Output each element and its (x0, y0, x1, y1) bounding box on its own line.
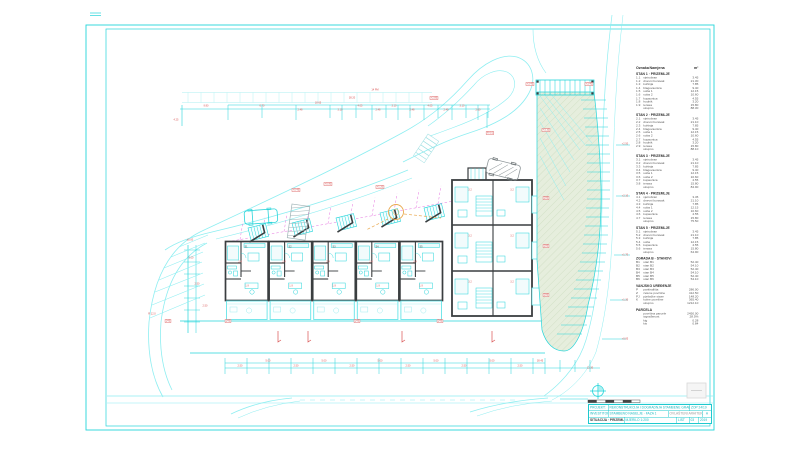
dim-label: ±0.00 (187, 239, 193, 242)
investor-label: INVESTITOR: (589, 411, 609, 417)
dim-label: +2.10 (622, 195, 628, 198)
dim-label: 3.2 (468, 281, 472, 284)
dim-label: +0.90 (324, 182, 332, 185)
dim-label: +0.45 (292, 188, 300, 191)
dim-label: 2.4 (238, 261, 242, 264)
dim-label: 245 (437, 319, 443, 322)
dim-label: 3.2 (510, 189, 514, 192)
legend-group: STAN 2 · PRIZEMLJE2.1vjetrobran3.452.2dn… (636, 113, 698, 151)
dim-label: S4 (375, 246, 378, 249)
dim-label: 245 (225, 319, 231, 322)
dim-label: 2.4 (282, 261, 286, 264)
legend-group: STAN 1 · PRIZEMLJE1.1vjetrobran3.451.2dn… (636, 72, 698, 110)
dim-label: 2.48 (298, 109, 303, 112)
stamp-cell: A (703, 411, 711, 417)
legend-group: STAN 5 · PRIZEMLJE5.1vjetrobran3.455.2dn… (636, 226, 698, 254)
dim-label: 295 (543, 293, 549, 296)
dim-label: 2.48 (410, 109, 415, 112)
dim-label: 3.10 (392, 105, 397, 108)
legend-row: ukupno88.10 (636, 148, 698, 151)
dim-label: 5.00 (434, 360, 439, 363)
dim-label: 2.50 (238, 365, 243, 368)
legend-group: STAN 4 · PRIZEMLJE4.1vjetrobran3.454.2dn… (636, 192, 698, 224)
dim-label: 245 (165, 319, 171, 322)
dim-label: 5.00 (490, 360, 495, 363)
title-block-row: SITUACIJA · PRIZEMLJE MJERILO 1:200 LIST… (589, 417, 711, 423)
dim-label: 2.50 (518, 365, 523, 368)
dim-label: 1.9 (332, 285, 336, 288)
dim-label: 2.50 (406, 365, 411, 368)
sheet-label: LIST (677, 417, 690, 423)
dim-label: 18.65 (315, 102, 321, 105)
legend-groups: STAN 1 · PRIZEMLJE1.1vjetrobran3.451.2dn… (636, 72, 698, 326)
dim-label: +2.85 (430, 96, 438, 99)
dim-label: 1.9 (289, 285, 293, 288)
legend-group: ZGRADA B · STANOVIB1stan B152.40B2stan B… (636, 257, 698, 282)
dim-label: 2.48 (376, 109, 381, 112)
dim-label: 295 (543, 196, 549, 199)
dim-label: 1.9 (419, 285, 423, 288)
dim-label: 9.80 (204, 105, 209, 108)
legend-row: kis0.84 (636, 323, 698, 326)
legend-group: STAN 3 · PRIZEMLJE3.1vjetrobran3.453.2dn… (636, 154, 698, 189)
dim-label: 5.00 (322, 360, 327, 363)
dim-label: 38.45 (537, 360, 543, 363)
dim-label: 295 (543, 244, 549, 247)
dim-label: 5.00 (378, 360, 383, 363)
dim-label: +1.70 (622, 254, 628, 257)
dim-label: +1.30 (622, 299, 628, 302)
dim-label: S3 (332, 246, 335, 249)
dim-label: 3.10 (338, 109, 343, 112)
zop-number: ZOP 24/19 (690, 405, 711, 411)
dim-label: 12.30 (587, 367, 593, 370)
legend-group: PARCELApovršina parcele2450.00izgrađenos… (636, 308, 698, 326)
dim-label: 6.70 (260, 105, 265, 108)
legend-row: ukupno84.90 (636, 186, 698, 189)
dim-label: 1.9 (376, 285, 380, 288)
dim-label: R 12.0 (148, 313, 155, 316)
dim-label: 3.2 (468, 189, 472, 192)
legend-group: VANJSKO UREĐENJEPparkirališta286.00Zzele… (636, 284, 698, 305)
dim-label: 2.4 (326, 261, 330, 264)
dim-label: 1.9 (245, 285, 249, 288)
dim-label: 3.2 (510, 281, 514, 284)
drawing-title: SITUACIJA · PRIZEMLJE (589, 417, 625, 423)
dim-label: 2.50 (294, 365, 299, 368)
project-label: PROJEKT: (589, 405, 609, 411)
dim-label: 14 PM (371, 89, 378, 92)
dim-label: R 6.0 (486, 131, 494, 134)
sheet-date: 2019 (699, 417, 711, 423)
dim-label: 2.4 (369, 261, 373, 264)
dim-label: 2.50 (195, 283, 200, 286)
investor-value: STAMBENO NASELJE · FAZA 1 (609, 411, 669, 417)
dim-label: +3.10 (542, 128, 550, 131)
drawing-scale: MJERILO 1:200 (625, 417, 678, 423)
title-block: PROJEKT: REKONSTRUKCIJA I DOGRADNJA STAM… (588, 404, 712, 424)
dim-label: 38.20 (349, 97, 355, 100)
project-title: REKONSTRUKCIJA I DOGRADNJA STAMBENE GRAĐ… (609, 405, 691, 411)
area-schedule: Oznaka Namjena m² STAN 1 · PRIZEMLJE1.1v… (636, 66, 698, 450)
dim-label: +2.50 (622, 143, 628, 146)
dim-label: +1.20 (376, 185, 384, 188)
dim-label: 245 (354, 319, 360, 322)
legend-row: ukupno1212.10 (636, 302, 698, 305)
sheet-number: 03 (690, 417, 700, 423)
dim-label: S2 (288, 246, 291, 249)
dim-label: S5 (419, 246, 422, 249)
legend-row: ukupno75.50 (636, 220, 698, 223)
dim-label: 2.48 (444, 109, 449, 112)
dim-label: 2.50 (462, 365, 467, 368)
dim-label: 4.05 (358, 105, 363, 108)
dim-label: +3.40 (585, 82, 593, 85)
dim-label: 2.50 (203, 305, 208, 308)
legend-row: ukupno88.30 (636, 107, 698, 110)
dim-label: 3.2 (510, 235, 514, 238)
dim-label: +3.45 (526, 82, 534, 85)
dim-label: 2.4 (413, 261, 417, 264)
dim-label: 2.50 (350, 365, 355, 368)
dim-label: 5.00 (266, 360, 271, 363)
architect-note: OVLAŠTENI ARHITEKT (669, 411, 704, 417)
dim-label: 2.60 (476, 109, 481, 112)
dim-label: +0.95 (622, 338, 628, 341)
legend-row: B6stan B654.10 (636, 278, 698, 281)
dim-label: 3.10 (460, 105, 465, 108)
dim-label: S1 (244, 246, 247, 249)
dim-label: 4.25 (174, 119, 179, 122)
dim-label: 3.2 (468, 235, 472, 238)
dim-label: 5.00 (189, 257, 194, 260)
legend-row: ukupno64.90 (636, 251, 698, 254)
dim-label: 4.05 (428, 105, 433, 108)
cad-sheet: 9.806.702.4818.653.104.052.483.102.484.0… (0, 0, 800, 450)
legend-header: Oznaka Namjena m² (636, 66, 698, 71)
